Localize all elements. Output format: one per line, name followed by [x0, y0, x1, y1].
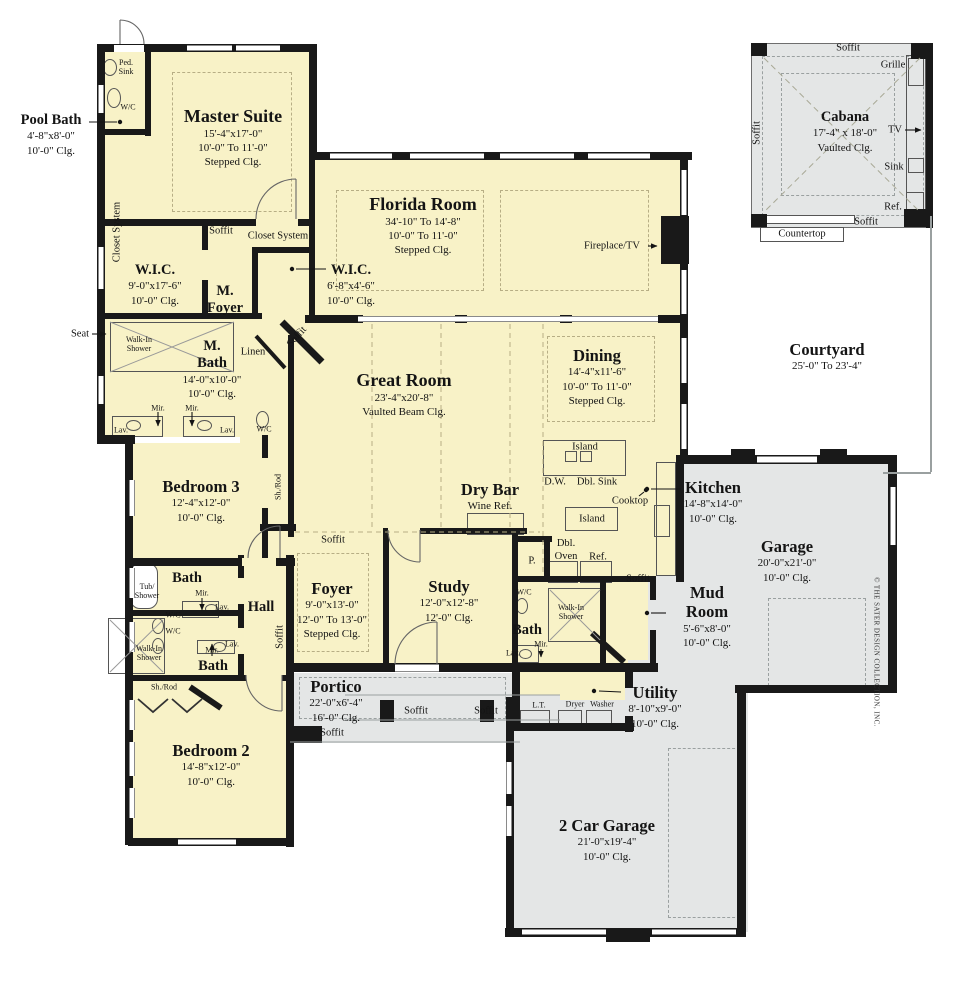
room-dim: 4'-8"x8'-0" — [21, 129, 82, 143]
window — [757, 456, 817, 463]
room-label-wic-right: W.I.C. 6'-8"x4'-6" 10'-0" Clg. — [327, 262, 375, 308]
annotation-soffit: Soffit — [474, 704, 498, 717]
window — [129, 742, 135, 776]
wall — [380, 700, 394, 722]
room-name: M. — [207, 283, 243, 300]
annotation-soffit: Soffit — [836, 41, 860, 54]
annotation-soffit: Soffit — [209, 224, 233, 237]
room-name: Utility — [628, 683, 681, 702]
annotation-mir: Mir. — [151, 403, 165, 412]
wall — [506, 697, 520, 704]
room-dim: 8'-10"x9'-0" — [628, 702, 681, 716]
room-ceiling: Vaulted Beam Clg. — [356, 405, 451, 419]
room-label-two-car-garage: 2 Car Garage 21'-0"x19'-4" 10'-0" Clg. — [559, 816, 655, 864]
room-name: Courtyard — [789, 340, 864, 359]
annotation-tub-shower: Tub/ Shower — [135, 582, 159, 600]
room-name: Mud — [683, 583, 731, 602]
room-dim: 14'-0"x10'-0" — [183, 373, 242, 387]
door-opening — [202, 250, 208, 280]
window — [98, 376, 104, 404]
wall — [512, 528, 518, 668]
room-ceiling: 10'-0" To 11'-0" — [369, 229, 477, 243]
plumbing-fixture — [103, 59, 117, 76]
annotation-lt: L.T. — [532, 700, 545, 709]
room-name: Bedroom 2 — [172, 741, 249, 760]
annotation-copyright: © THE SATER DESIGN COLLECTION, INC. — [872, 577, 881, 727]
room-ceiling: 12'-0" Clg. — [420, 611, 479, 625]
room-label-dry-bar: Dry Bar Wine Ref. — [461, 480, 519, 514]
room-ceiling: 10'-0" Clg. — [683, 636, 731, 650]
annotation-ped-sink: Ped. Sink — [119, 58, 134, 76]
annotation-mir: Mir. — [534, 639, 548, 648]
annotation-seat: Seat — [71, 327, 89, 340]
room-ceiling: 10'-0" Clg. — [559, 850, 655, 864]
room-label-bedroom2: Bedroom 2 14'-8"x12'-0" 10'-0" Clg. — [172, 741, 249, 789]
room-ceiling: 10'-0" Clg. — [628, 717, 681, 731]
wall — [911, 43, 933, 59]
ceiling-dash — [668, 748, 740, 918]
wall — [904, 209, 933, 227]
room-label-m-bath: M. Bath 14'-0"x10'-0" 10'-0" Clg. — [183, 338, 242, 401]
room-ceiling: 10'-0" Clg. — [758, 571, 817, 585]
room-name: Cabana — [813, 109, 877, 126]
room-ceiling: 10'-0" Clg. — [21, 144, 82, 158]
plumbing-fixture — [152, 618, 164, 634]
room-dim: 23'-4"x20'-8" — [356, 391, 451, 405]
wall — [600, 576, 606, 668]
window — [129, 480, 135, 516]
annotation-countertop: Countertop — [778, 227, 825, 240]
fixture — [654, 505, 670, 537]
room-dim: 22'-0"x6'-4" — [309, 696, 362, 710]
window — [681, 270, 687, 314]
wall — [820, 449, 847, 464]
window — [395, 664, 439, 672]
wall — [290, 726, 322, 743]
door-opening — [246, 675, 282, 681]
window — [98, 247, 104, 289]
wall — [309, 152, 315, 322]
window — [178, 839, 236, 845]
room-label-m-foyer: M. Foyer — [207, 283, 243, 318]
wall — [751, 214, 767, 227]
room-name: Garage — [758, 537, 817, 556]
annotation-lav: Lav. — [225, 639, 239, 648]
door-opening — [256, 219, 298, 226]
door-opening — [114, 45, 144, 52]
room-name: Bath — [172, 570, 202, 587]
room-label-cabana: Cabana 17'-4" x 18'-0" Vaulted Clg. — [813, 109, 877, 155]
fixture — [765, 215, 855, 224]
room-ceiling: 10'-0" Clg. — [183, 387, 242, 401]
room-name: Dry Bar — [461, 480, 519, 499]
room-dim: 20'-0"x21'-0" — [758, 556, 817, 570]
annotation-ref: Ref. — [589, 550, 607, 563]
annotation-wc: W/C — [516, 587, 531, 596]
room-ceiling: Stepped Clg. — [562, 394, 632, 408]
room-name: Hall — [248, 599, 275, 616]
annotation-soffit: Soffit — [321, 533, 345, 546]
annotation-mir: Mir. — [205, 645, 219, 654]
room-dim: 6'-8"x4'-6" — [327, 279, 375, 293]
room-name: W.I.C. — [327, 262, 375, 279]
door-opening — [238, 578, 244, 604]
room-name: Bedroom 3 — [162, 477, 239, 496]
fixture-label: Wine Ref. — [461, 499, 519, 513]
room-label-garage: Garage 20'-0"x21'-0" 10'-0" Clg. — [758, 537, 817, 585]
window — [681, 338, 687, 383]
window — [890, 487, 896, 545]
room-name: Great Room — [356, 370, 451, 391]
room-dim: 5'-6"x8'-0" — [683, 622, 731, 636]
room-label-florida-room: Florida Room 34'-10" To 14'-8" 10'-0" To… — [369, 194, 477, 258]
room-dim: 14'-8"x14'-0" — [684, 497, 743, 511]
window — [681, 170, 687, 215]
annotation-ref: Ref. — [884, 200, 902, 213]
room-name: Room — [683, 602, 731, 621]
wall — [97, 129, 151, 135]
room-name: Study — [420, 577, 479, 596]
fixture — [558, 710, 582, 724]
window — [681, 404, 687, 449]
room-ceiling: Stepped Clg. — [369, 243, 477, 257]
room-name: Bath — [183, 355, 242, 372]
window — [129, 622, 135, 652]
annotation-lav: Lav. — [506, 648, 520, 657]
room-label-bath-hall-lower: Bath — [198, 658, 228, 675]
annotation-sink: Sink — [884, 160, 903, 173]
room-name: Master Suite — [184, 106, 282, 127]
annotation-lav: Lav. — [114, 425, 128, 434]
room-dim: 12'-0"x12'-8" — [420, 596, 479, 610]
room-label-study: Study 12'-0"x12'-8" 12'-0" Clg. — [420, 577, 479, 625]
room-label-great-room: Great Room 23'-4"x20'-8" Vaulted Beam Cl… — [356, 370, 451, 419]
window — [98, 85, 104, 113]
room-name: Portico — [309, 677, 362, 696]
room-ceiling: Stepped Clg. — [297, 627, 367, 641]
room-dim: 12'-4"x12'-0" — [162, 496, 239, 510]
wall — [260, 524, 296, 531]
wall — [252, 247, 258, 313]
wall — [288, 335, 294, 537]
room-label-bath-study: Bath — [512, 622, 542, 639]
room-ceiling: 10'-0" Clg. — [327, 294, 375, 308]
annotation-closet-system: Closet System — [110, 202, 123, 262]
annotation-washer: Washer — [590, 699, 614, 708]
annotation-tv: TV — [888, 123, 902, 136]
window — [500, 153, 574, 159]
wall — [252, 247, 314, 253]
annotation-walk-in-shower: Walk-In Shower — [558, 603, 584, 621]
room-label-bedroom3: Bedroom 3 12'-4"x12'-0" 10'-0" Clg. — [162, 477, 239, 525]
annotation-dbl-oven: Dbl. Oven — [555, 537, 578, 563]
wall — [238, 555, 244, 677]
room-label-pool-bath: Pool Bath 4'-8"x8'-0" 10'-0" Clg. — [21, 112, 82, 158]
wall — [926, 43, 933, 228]
floor-plan: Pool Bath 4'-8"x8'-0" 10'-0" Clg. Master… — [0, 0, 960, 983]
wall — [658, 315, 688, 323]
annotation-island: Island — [572, 440, 598, 453]
room-dim: 9'-0"x13'-0" — [297, 598, 367, 612]
room-label-bath-hall-upper: Bath — [172, 570, 202, 587]
room-dim: 34'-10" To 14'-8" — [369, 215, 477, 229]
wall — [544, 536, 550, 578]
door-opening — [262, 458, 268, 508]
annotation-closet-system: Closet System — [248, 229, 308, 242]
wall — [305, 315, 363, 323]
wall — [731, 449, 755, 464]
room-dim: 21'-0"x19'-4" — [559, 835, 655, 849]
room-name: Florida Room — [369, 194, 477, 215]
window — [129, 788, 135, 818]
wall — [286, 555, 294, 847]
annotation-mir: Mir. — [195, 588, 209, 597]
wall — [661, 216, 689, 264]
plumbing-fixture — [107, 88, 121, 108]
annotation-wc: W/C — [165, 610, 180, 619]
fixture — [586, 710, 612, 724]
window — [506, 806, 512, 836]
fixture — [908, 58, 924, 86]
room-label-kitchen: Kitchen 14'-8"x14'-0" 10'-0" Clg. — [684, 478, 743, 526]
room-dim: 14'-4"x11'-6" — [562, 365, 632, 379]
annotation-wc: W/C — [256, 424, 271, 433]
door-opening — [650, 600, 656, 630]
window — [330, 153, 392, 159]
wall — [606, 928, 650, 942]
room-name: W.I.C. — [128, 262, 181, 279]
room-ceiling: 10'-0" To 11'-0" — [184, 141, 282, 155]
room-dim: 9'-0"x17'-6" — [128, 279, 181, 293]
window — [588, 153, 650, 159]
room-name: Foyer — [207, 300, 243, 317]
room-ceiling: 10'-0" To 11'-0" — [562, 380, 632, 394]
courtyard-boundary — [883, 216, 931, 473]
room-label-courtyard: Courtyard 25'-0" To 23'-4" — [789, 340, 864, 374]
room-name: Foyer — [297, 579, 367, 598]
room-label-hall: Hall — [248, 599, 275, 616]
room-name: Bath — [512, 622, 542, 639]
wall — [309, 44, 317, 159]
annotation-soffit: Soffit — [273, 625, 286, 649]
room-ceiling: 16'-0" Clg. — [309, 711, 362, 725]
room-label-mud-room: Mud Room 5'-6"x8'-0" 10'-0" Clg. — [683, 583, 731, 651]
plumbing-fixture — [197, 420, 212, 431]
room-ceiling: 10'-0" Clg. — [684, 512, 743, 526]
annotation-lav: Lav. — [215, 602, 229, 611]
window — [522, 929, 606, 935]
window — [652, 929, 736, 935]
annotation-island: Island — [579, 512, 605, 525]
wall — [512, 723, 634, 731]
room-label-foyer: Foyer 9'-0"x13'-0" 12'-0" To 13'-0" Step… — [297, 579, 367, 641]
room-label-wic-left: W.I.C. 9'-0"x17'-6" 10'-0" Clg. — [128, 262, 181, 308]
plumbing-fixture — [126, 420, 141, 431]
room-ceiling: 10'-0" Clg. — [172, 775, 249, 789]
window — [236, 45, 280, 51]
annotation-cooktop: Cooktop — [612, 494, 648, 507]
fixture — [908, 158, 924, 173]
room-ceiling: Vaulted Clg. — [813, 141, 877, 155]
room-ceiling: 10'-0" Clg. — [162, 511, 239, 525]
window — [187, 45, 232, 51]
annotation-sh-rod: Sh./Rod — [273, 474, 282, 500]
wall — [751, 43, 767, 56]
ceiling-dash — [768, 598, 866, 686]
wall — [737, 685, 746, 937]
annotation-mir: Mir. — [185, 403, 199, 412]
room-label-utility: Utility 8'-10"x9'-0" 10'-0" Clg. — [628, 683, 681, 731]
room-dim: 14'-8"x12'-0" — [172, 760, 249, 774]
fixture — [520, 710, 550, 724]
room-ceiling: Stepped Clg. — [184, 155, 282, 169]
annotation-soffit: Soffit — [854, 215, 878, 228]
window — [129, 700, 135, 730]
annotation-dbl-sink: Dbl. Sink — [577, 475, 617, 488]
annotation-dw: D.W. — [544, 475, 566, 488]
room-ceiling: 10'-0" Clg. — [128, 294, 181, 308]
annotation-soffit: Soffit — [320, 726, 344, 739]
door-opening — [388, 528, 420, 534]
wall — [145, 44, 151, 136]
window — [506, 762, 512, 794]
room-name: Pool Bath — [21, 112, 82, 129]
wall — [383, 528, 389, 668]
annotation-soffit: Soffit — [750, 121, 763, 145]
room-label-portico: Portico 22'-0"x6'-4" 16'-0" Clg. — [309, 677, 362, 725]
window — [358, 316, 658, 322]
room-name: Kitchen — [684, 478, 743, 497]
room-label-dining: Dining 14'-4"x11'-6" 10'-0" To 11'-0" St… — [562, 346, 632, 408]
annotation-walk-in-shower: Walk-In Shower — [136, 644, 162, 662]
window — [410, 153, 484, 159]
room-dim: 25'-0" To 23'-4" — [789, 359, 864, 373]
annotation-soffit: Soffit — [626, 572, 650, 585]
room-dim: 15'-4"x17'-0" — [184, 127, 282, 141]
annotation-wc: W/C — [120, 102, 135, 111]
annotation-p: P. — [528, 554, 535, 567]
annotation-linen: Linen — [241, 345, 266, 358]
room-label-master-suite: Master Suite 15'-4"x17'-0" 10'-0" To 11'… — [184, 106, 282, 170]
door-opening — [242, 558, 276, 566]
room-name: M. — [183, 338, 242, 355]
annotation-dryer: Dryer — [566, 699, 585, 708]
room-name: Bath — [198, 658, 228, 675]
annotation-walk-in-shower: Walk-In Shower — [126, 335, 152, 353]
room-dim: 17'-4" x 18'-0" — [813, 126, 877, 140]
annotation-fireplace-tv: Fireplace/TV — [584, 239, 640, 252]
annotation-grille: Grille — [881, 58, 906, 71]
room-name: 2 Car Garage — [559, 816, 655, 835]
annotation-lav: Lav. — [220, 425, 234, 434]
room-name: Dining — [562, 346, 632, 365]
plumbing-fixture — [519, 649, 532, 659]
room-ceiling: 12'-0" To 13'-0" — [297, 613, 367, 627]
annotation-sh-rod: Sh./Rod — [151, 682, 177, 691]
annotation-soffit: Soffit — [404, 704, 428, 717]
annotation-wc: W/C — [165, 626, 180, 635]
